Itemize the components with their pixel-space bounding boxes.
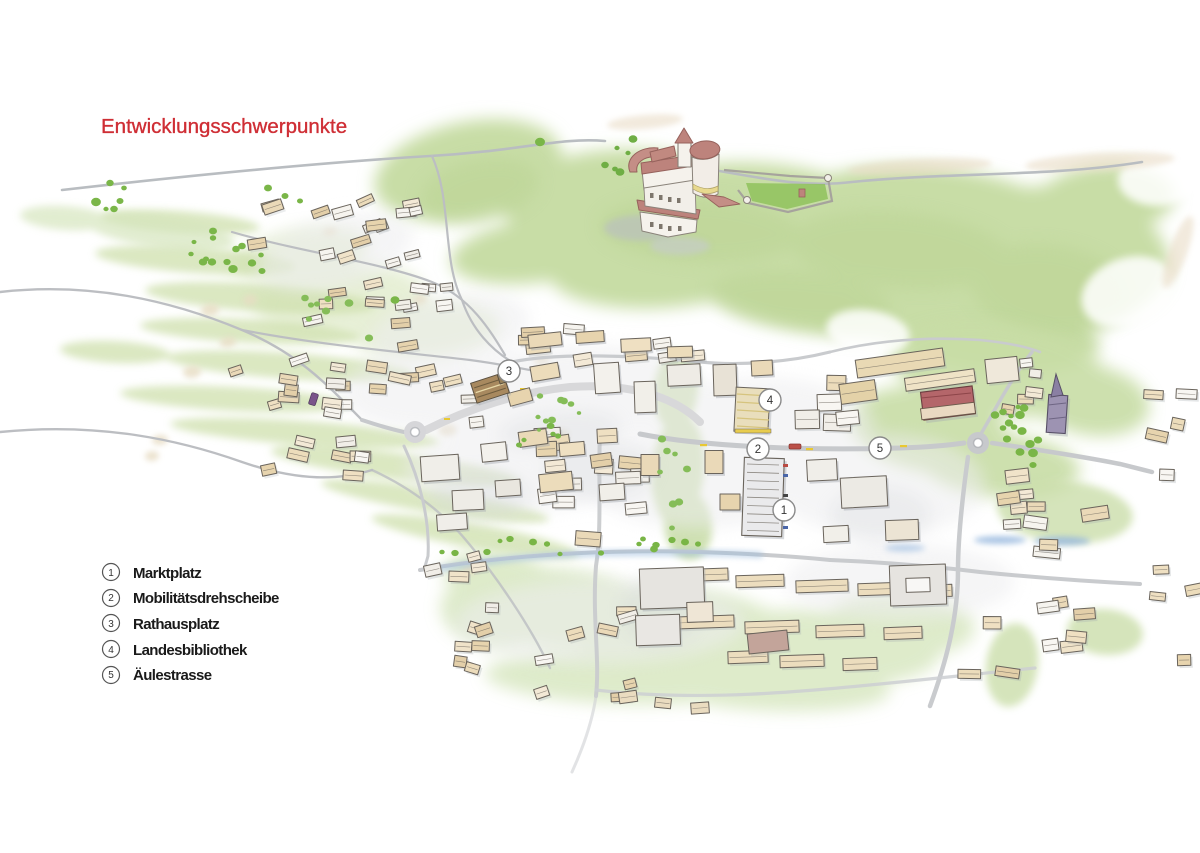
svg-text:5: 5: [877, 443, 883, 455]
svg-text:1: 1: [781, 505, 787, 517]
svg-text:Entwicklungsschwerpunkte: Entwicklungsschwerpunkte: [101, 115, 347, 138]
svg-text:Landesbibliothek: Landesbibliothek: [133, 642, 248, 659]
svg-text:Äulestrasse: Äulestrasse: [133, 667, 212, 684]
svg-text:Rathausplatz: Rathausplatz: [133, 616, 219, 633]
svg-text:3: 3: [108, 619, 114, 630]
svg-text:1: 1: [108, 568, 114, 579]
svg-text:3: 3: [506, 366, 512, 378]
svg-text:2: 2: [755, 444, 761, 456]
svg-text:4: 4: [108, 645, 114, 656]
svg-text:2: 2: [108, 593, 114, 604]
svg-text:Marktplatz: Marktplatz: [133, 565, 201, 582]
svg-text:Mobilitätsdrehscheibe: Mobilitätsdrehscheibe: [133, 590, 279, 607]
svg-text:4: 4: [767, 395, 774, 407]
svg-text:5: 5: [108, 670, 114, 681]
